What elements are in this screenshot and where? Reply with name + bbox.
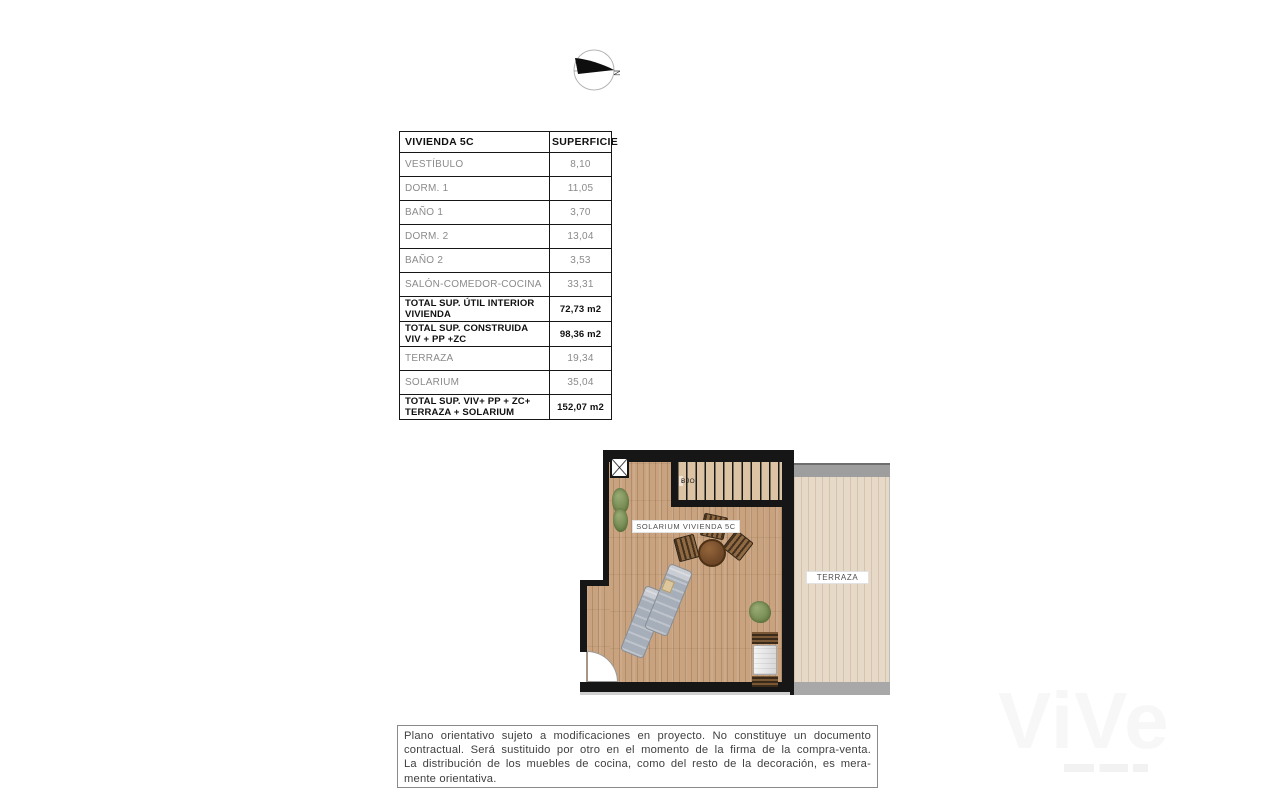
room-label: BAÑO 2 [400,249,550,273]
floor-plan: ‹ BJO SOLARIUM VIVIENDA 5C TERRAZA [579,450,891,700]
disclaimer-line: mente orientativa. [404,772,871,786]
table-row: DORM. 213,04 [400,225,612,249]
white-lounger-icon [753,645,777,675]
plan-shadow-line [580,692,790,695]
wall [671,500,782,507]
room-label: TERRAZA [400,347,550,371]
disclaimer-line: Plano orientativo sujeto a modificacione… [404,729,871,743]
watermark-text: ViVe [998,678,1198,764]
room-label: DORM. 1 [400,177,550,201]
compass-icon: N [565,42,625,100]
wall [782,450,794,695]
room-label: TOTAL SUP. CONSTRUIDA VIV + PP +ZC [400,322,550,347]
room-label: DORM. 2 [400,225,550,249]
room-label: VESTÍBULO [400,153,550,177]
stairs-label: BJO [681,478,695,485]
room-area-value: 72,73 m2 [550,297,612,322]
room-area-value: 35,04 [550,371,612,395]
table-body: VESTÍBULO8,10DORM. 111,05BAÑO 13,70DORM.… [400,153,612,420]
table-row: SALÓN-COMEDOR-COCINA33,31 [400,273,612,297]
room-area-value: 19,34 [550,347,612,371]
terraza-label: TERRAZA [806,571,869,584]
svg-text:N: N [612,70,621,76]
room-label: TOTAL SUP. VIV+ PP + ZC+ TERRAZA + SOLAR… [400,395,550,420]
room-label: SALÓN-COMEDOR-COCINA [400,273,550,297]
disclaimer-box: Plano orientativo sujeto a modificacione… [397,725,878,788]
table-row: BAÑO 23,53 [400,249,612,273]
room-area-value: 33,31 [550,273,612,297]
room-area-value: 152,07 m2 [550,395,612,420]
plant-icon [749,601,771,623]
room-area-value: 3,70 [550,201,612,225]
room-area-value: 98,36 m2 [550,322,612,347]
solarium-label: SOLARIUM VIVIENDA 5C [632,520,740,533]
skylight-x-icon [610,457,629,478]
room-area-value: 8,10 [550,153,612,177]
disclaimer-line: La distribución de los muebles de cocina… [404,757,871,771]
room-area-value: 3,53 [550,249,612,273]
room-area-value: 11,05 [550,177,612,201]
page-canvas: { "compass": { "north_label": "N" }, "ta… [0,0,1280,800]
wall [580,580,587,652]
table-row: TOTAL SUP. CONSTRUIDA VIV + PP +ZC98,36 … [400,322,612,347]
surface-area-table: VIVIENDA 5C SUPERFICIE VESTÍBULO8,10DORM… [399,131,612,420]
wall [603,450,783,462]
table-header-row: VIVIENDA 5C SUPERFICIE [400,132,612,153]
brand-watermark: ViVe [998,678,1198,778]
round-table-icon [698,539,726,567]
table-row: DORM. 111,05 [400,177,612,201]
compass-north-indicator: N [565,42,625,100]
column-header-superficie: SUPERFICIE [550,132,612,153]
room-area-value: 13,04 [550,225,612,249]
wall [603,450,609,586]
disclaimer-line: contractual. Será sustituido por otro en… [404,743,871,757]
watermark-tagline [1064,764,1148,772]
stairs-direction-note: ‹ BJO [679,476,683,486]
table-row: SOLARIUM35,04 [400,371,612,395]
table-row: TERRAZA19,34 [400,347,612,371]
room-label: TOTAL SUP. ÚTIL INTERIOR VIVIENDA [400,297,550,322]
terraza-top-edge [794,463,890,477]
terraza-bottom-edge [794,682,890,695]
plant-icon [613,508,628,532]
table-row: TOTAL SUP. VIV+ PP + ZC+ TERRAZA + SOLAR… [400,395,612,420]
room-label: BAÑO 1 [400,201,550,225]
table-row: TOTAL SUP. ÚTIL INTERIOR VIVIENDA72,73 m… [400,297,612,322]
table-row: BAÑO 13,70 [400,201,612,225]
mat-icon [752,676,778,687]
column-header-vivienda: VIVIENDA 5C [400,132,550,153]
room-label: SOLARIUM [400,371,550,395]
mat-icon [752,632,778,644]
table-row: VESTÍBULO8,10 [400,153,612,177]
